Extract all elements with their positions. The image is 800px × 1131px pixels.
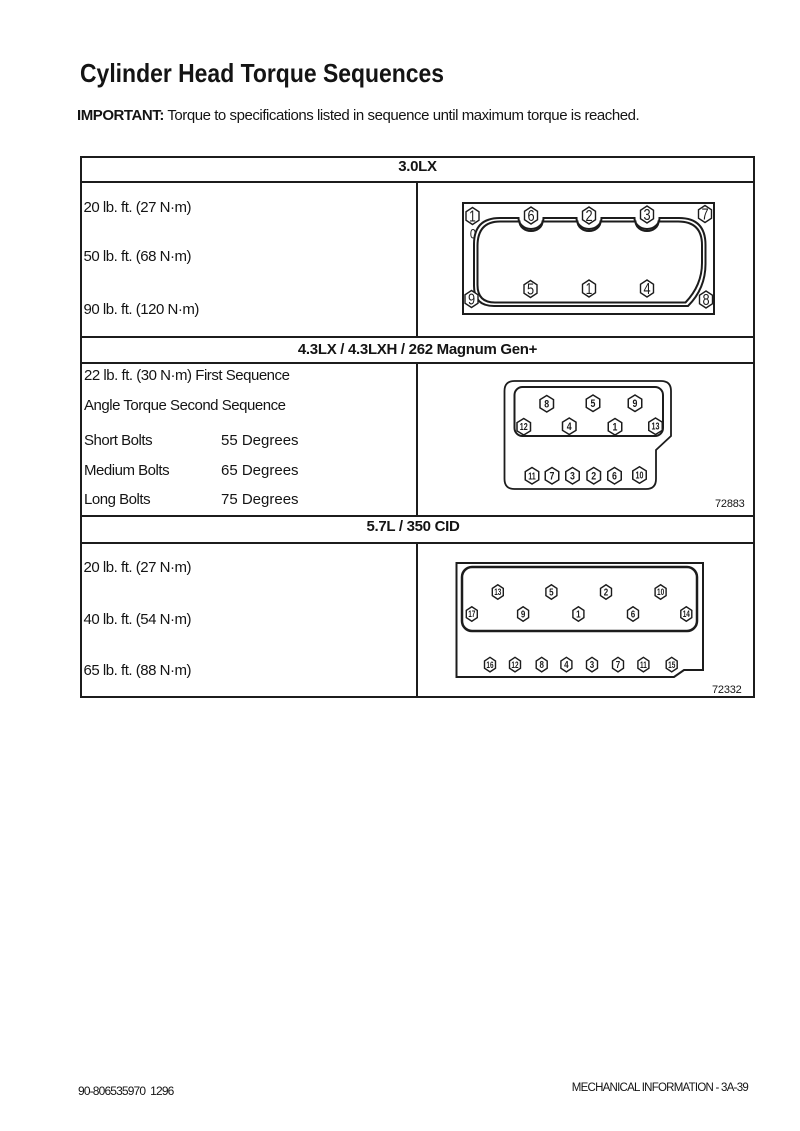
svg-text:9: 9 [633,398,638,410]
svg-text:1: 1 [586,279,593,297]
svg-text:8: 8 [702,292,709,310]
svg-text:10: 10 [636,469,644,481]
svg-text:14: 14 [683,609,691,620]
svg-text:8: 8 [539,659,543,670]
svg-text:4: 4 [567,421,572,433]
svg-text:1: 1 [576,609,580,620]
svg-text:2: 2 [585,208,592,226]
svg-text:5: 5 [549,587,553,598]
svg-text:9: 9 [521,609,525,620]
svg-text:15: 15 [668,660,676,671]
svg-text:12: 12 [511,660,519,671]
svg-text:6: 6 [631,609,635,620]
svg-text:3: 3 [643,207,650,225]
svg-text:7: 7 [616,659,620,670]
svg-text:1: 1 [469,207,476,225]
svg-text:13: 13 [652,420,660,432]
svg-text:6: 6 [527,208,534,226]
svg-text:1: 1 [613,422,618,434]
svg-text:11: 11 [640,660,647,671]
svg-text:16: 16 [486,660,494,671]
svg-text:4: 4 [564,659,568,670]
svg-text:17: 17 [468,609,476,620]
svg-text:8: 8 [544,399,549,411]
svg-text:2: 2 [591,471,596,483]
svg-text:7: 7 [550,471,555,483]
svg-text:4: 4 [643,281,650,299]
svg-text:6: 6 [612,471,617,483]
svg-text:5: 5 [527,281,534,299]
svg-text:3: 3 [570,471,575,483]
svg-text:0: 0 [470,226,476,241]
svg-text:13: 13 [494,587,502,598]
svg-text:7: 7 [701,206,708,224]
svg-text:2: 2 [604,587,608,598]
svg-text:9: 9 [468,291,475,309]
svg-text:11: 11 [528,470,536,482]
svg-text:10: 10 [657,587,665,598]
svg-text:5: 5 [591,398,596,410]
svg-text:3: 3 [590,659,594,670]
svg-text:12: 12 [520,420,528,432]
